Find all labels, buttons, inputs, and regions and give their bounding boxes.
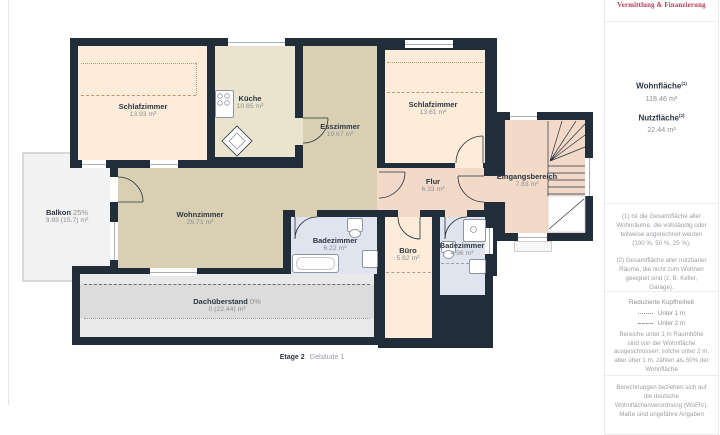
floor-label: Etage 2 <box>280 354 305 361</box>
window-wohnzimmer-balkon <box>110 222 118 260</box>
room-label-esszimmer: Esszimmer19.67 m² <box>320 122 360 140</box>
door-opening-badezimmer-2 <box>445 210 467 217</box>
headroom-dash-s2 <box>387 92 483 93</box>
door-opening-balkon <box>110 177 118 202</box>
nutzflaeche-label: Nutzfläche(2) <box>639 113 685 123</box>
room-label-eingangsbereich: Eingangsbereich7.83 m² <box>497 172 557 190</box>
headroom-text: Bereiche unter 1 m Raumhöhe sind von der… <box>613 331 710 374</box>
headroom-line-dash-dach <box>84 284 370 285</box>
floorplan-page: { "branding": { "logo": "Vermittlung & F… <box>0 0 720 405</box>
info-sidebar: Vermittlung & Finanzierung Wohnfläche(1)… <box>604 0 719 405</box>
room-label-flur: Flur6.33 m² <box>421 177 444 195</box>
floor-plan: Balkon 25% 3.93 (15.7) m² <box>0 0 604 405</box>
headroom-dot-s1 <box>81 63 196 64</box>
window-badezimmer2-right <box>485 228 493 254</box>
disclaimer-text: Berechnungen beziehen sich auf die deuts… <box>614 384 709 420</box>
headroom-legend-card: Reduzierte Kopffreiheit Unter 1 m Unter … <box>604 291 719 376</box>
building-label: Gebäude 1 <box>310 354 345 361</box>
room-label-balkon: Balkon 25% 3.93 (15.7) m² <box>46 208 89 226</box>
room-esszimmer <box>303 46 377 168</box>
room-label-wohnzimmer: Wohnzimmer25.71 m² <box>177 210 224 228</box>
page-edge-line <box>8 0 9 405</box>
headroom-line-dot-dach <box>84 318 370 319</box>
door-opening-kueche <box>295 118 303 145</box>
dotted-line-icon <box>638 313 653 314</box>
headroom-dot-s2 <box>387 62 483 63</box>
plan-footer: Etage 2Gebäude 1 <box>247 354 377 361</box>
headroom-title: Reduzierte Kopffreiheit <box>613 299 710 306</box>
window-kueche-top <box>228 38 285 46</box>
wohnflaeche-label: Wohnfläche(1) <box>636 81 687 91</box>
room-label-dachueberstand: Dachüberstand 0% 0 (22.44) m² <box>193 297 261 315</box>
headroom-dash-s1 <box>81 95 196 96</box>
sink-icon-bad2 <box>469 259 486 274</box>
footnotes-card: (1) Ist die Gesamtfläche aller Wohnräume… <box>604 203 719 292</box>
room-wohnzimmer-east <box>283 168 377 210</box>
legend-under-2m: Unter 2 m <box>613 320 710 327</box>
room-balkon: Balkon 25% 3.93 (15.7) m² <box>22 152 112 282</box>
room-label-badezimmer-2: Badezimmer4.96 m² <box>440 241 485 259</box>
window-wohnzimmer-bottom <box>150 268 197 276</box>
bathtub-inner <box>296 257 335 270</box>
room-label-badezimmer-1: Badezimmer6.22 m² <box>313 236 358 254</box>
window-schlafzimmer1-balkon <box>82 160 106 168</box>
door-opening-badezimmer-1 <box>295 210 317 217</box>
headroom-dot-s1-v <box>196 63 197 95</box>
dashed-line-icon <box>638 323 653 324</box>
room-label-schlafzimmer-2: Schlafzimmer13.61 m² <box>409 100 458 118</box>
legend-under-1m: Unter 1 m <box>613 310 710 317</box>
footnote-1: (1) Ist die Gesamtfläche aller Wohnräume… <box>614 213 709 249</box>
room-buero <box>385 217 432 338</box>
door-opening-buero <box>398 210 420 217</box>
stove-icon <box>215 90 234 118</box>
room-label-schlafzimmer-1: Schlafzimmer13.93 m² <box>119 102 168 120</box>
footnote-2: (2) Gesamtfläche aller nutzbaren Räume, … <box>614 257 709 293</box>
sink-icon-bad1 <box>362 250 378 268</box>
room-label-buero: Büro5.62 m² <box>396 246 419 264</box>
shower-icon-bad2 <box>463 219 486 242</box>
window-schlafzimmer2-top <box>405 40 453 48</box>
broker-logo-text: Vermittlung & Finanzierung <box>617 2 705 9</box>
window-eingang-top <box>510 112 537 120</box>
door-opening-schlafzimmer-2 <box>455 163 483 168</box>
entry-step <box>514 241 552 252</box>
disclaimer-card: Berechnungen beziehen sich auf die deuts… <box>604 375 719 435</box>
opening-schlafzimmer1 <box>150 160 178 168</box>
broker-logo: Vermittlung & Finanzierung <box>604 0 719 22</box>
room-label-kueche: Küche10.65 m² <box>237 94 264 112</box>
nutzflaeche-value: 22.44 m² <box>647 125 675 134</box>
headroom-dash-buero <box>386 272 431 273</box>
wohnflaeche-value: 118.46 m² <box>646 94 678 103</box>
entry-door-opening <box>518 233 547 241</box>
window-eingang-right <box>585 158 593 196</box>
area-stats-card: Wohnfläche(1) 118.46 m² Nutzfläche(2) 22… <box>604 21 719 204</box>
